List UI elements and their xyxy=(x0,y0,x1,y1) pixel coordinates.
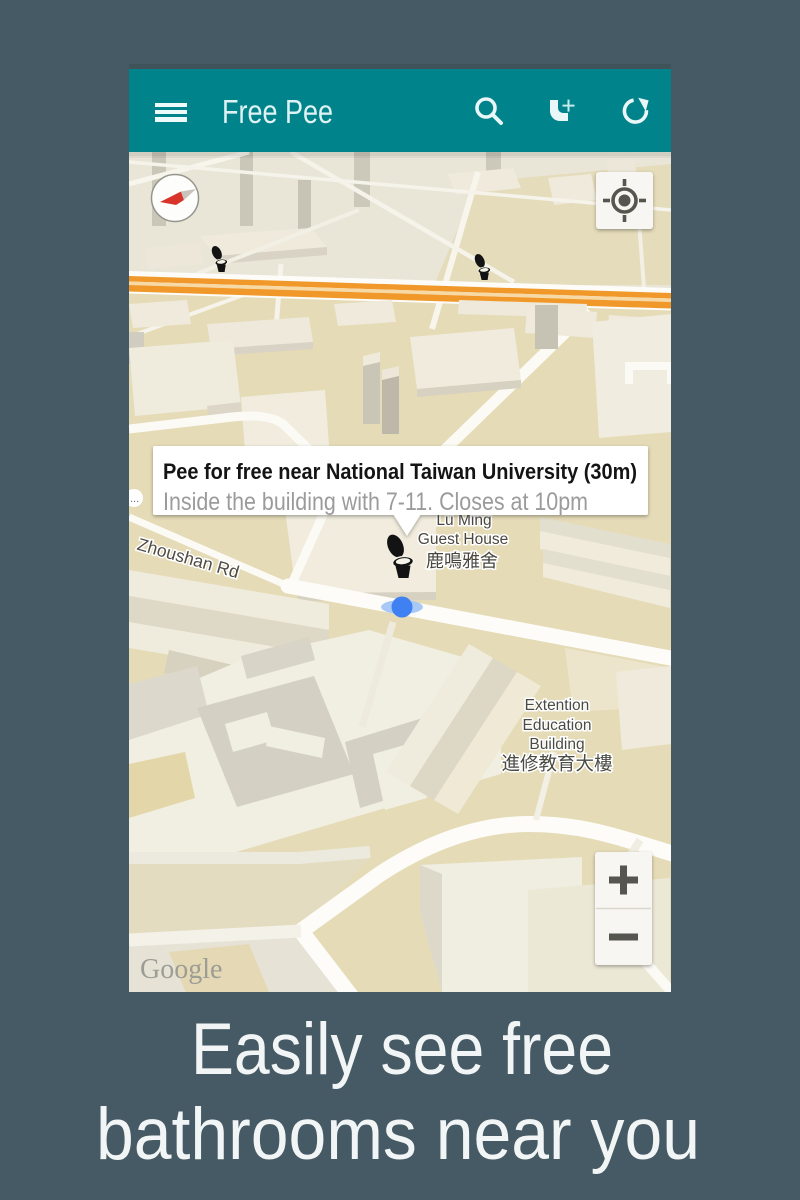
svg-text:Inside the building with 7-11.: Inside the building with 7-11. Closes at… xyxy=(163,488,588,516)
svg-text:Building: Building xyxy=(529,736,584,753)
svg-text:Free Pee: Free Pee xyxy=(222,93,333,130)
svg-text:Google: Google xyxy=(140,954,222,985)
svg-text:進修教育大樓: 進修教育大樓 xyxy=(501,753,612,774)
svg-text:鹿鳴雅舍: 鹿鳴雅舍 xyxy=(426,551,498,571)
svg-text:Education: Education xyxy=(523,717,592,734)
svg-text:Easily see free: Easily see free xyxy=(191,1009,613,1090)
svg-text:Extention: Extention xyxy=(525,697,590,714)
svg-text:...: ... xyxy=(130,493,139,505)
svg-text:bathrooms near you: bathrooms near you xyxy=(96,1094,700,1175)
svg-text:Guest House: Guest House xyxy=(418,531,508,548)
svg-text:Pee for free near National Tai: Pee for free near National Taiwan Univer… xyxy=(163,459,637,484)
